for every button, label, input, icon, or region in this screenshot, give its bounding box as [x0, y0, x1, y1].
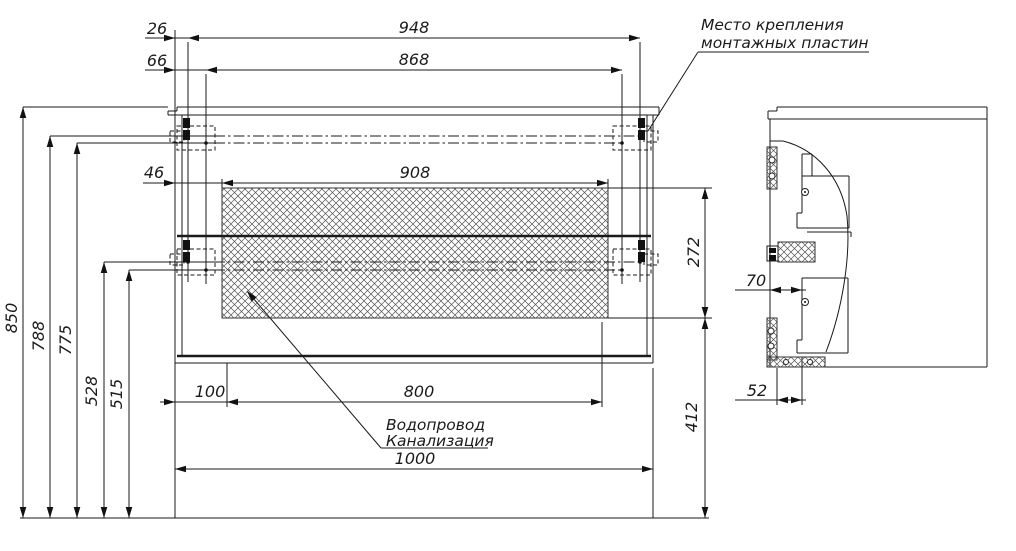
dim-label-528: 528 [82, 376, 101, 407]
dim-label-46: 46 [144, 163, 164, 182]
arrowhead [770, 287, 781, 294]
clip-solid [638, 118, 645, 128]
bolt-dot [620, 141, 624, 145]
arrowhead [206, 67, 217, 74]
clip-solid [183, 240, 190, 250]
arrowhead [702, 318, 709, 329]
bolt-dot [804, 301, 806, 303]
bolt-dot [204, 268, 208, 272]
hole-circle [784, 360, 789, 365]
clip-solid [183, 118, 190, 128]
arrowhead [702, 507, 709, 518]
arrowhead [702, 188, 709, 199]
note-mounting-plates-line2: монтажных пластин [701, 34, 869, 52]
dim-label-66: 66 [147, 51, 167, 70]
dim-label-850: 850 [2, 303, 21, 334]
clip-solid [638, 240, 645, 250]
drawing-canvas: 2694866868469088507887755285152724121008… [0, 0, 1016, 551]
dim-label-908: 908 [400, 163, 431, 182]
clip-solid [769, 248, 776, 253]
arrowhead [777, 397, 788, 404]
arrowhead [791, 287, 802, 294]
arrowhead [20, 107, 27, 118]
hatch-area [767, 357, 825, 367]
dim-label-788: 788 [29, 321, 48, 352]
note-plumbing-line2: Канализация [386, 432, 494, 450]
dim-label-26: 26 [147, 19, 167, 38]
hole-circle [768, 328, 774, 334]
hole-circle [769, 173, 775, 179]
note-mounting-plates-line1: Место крепления [701, 16, 844, 34]
arrowhead [101, 507, 108, 518]
bolt-dot [638, 260, 642, 264]
arrowhead [702, 307, 709, 318]
hatch-area [767, 318, 777, 360]
bolt-dot [186, 134, 190, 138]
arrowhead [629, 35, 640, 42]
dim-label-100: 100 [195, 382, 226, 401]
clip-solid [769, 255, 776, 261]
hatch-areas [222, 147, 825, 367]
arrowhead [227, 399, 238, 406]
arrowhead [74, 507, 81, 518]
arrowhead [74, 143, 81, 154]
drawing-line [648, 52, 698, 131]
hole-circle [769, 157, 775, 163]
bracket-dashed-rect [613, 126, 651, 150]
bolt-dot [186, 260, 190, 264]
dim-label-948: 948 [399, 18, 430, 37]
arrowhead [20, 507, 27, 518]
arrowhead [611, 67, 622, 74]
arrowhead [101, 262, 108, 273]
dim-label-70: 70 [746, 271, 766, 290]
dim-label-412: 412 [682, 402, 701, 433]
arrowhead [175, 466, 186, 473]
bolt-dot [620, 268, 624, 272]
arrowhead [164, 180, 175, 187]
hatch-area [767, 147, 777, 189]
arrowhead [126, 270, 133, 281]
arrowhead [47, 507, 54, 518]
dim-label-52: 52 [747, 381, 767, 400]
dim-label-1000: 1000 [395, 449, 436, 468]
technical-drawing: 2694866868469088507887755285152724121008… [0, 0, 1016, 551]
hole-circle [768, 343, 774, 349]
arrowhead [188, 35, 199, 42]
arrowhead [126, 507, 133, 518]
hatch-area [778, 242, 815, 262]
dim-label-775: 775 [56, 325, 75, 356]
dim-label-515: 515 [107, 379, 126, 410]
dim-label-800: 800 [404, 382, 435, 401]
arrowhead [791, 397, 802, 404]
bolt-dot [804, 191, 806, 193]
bolt-dot [204, 141, 208, 145]
arrowhead [164, 399, 175, 406]
arrowhead [47, 136, 54, 147]
dim-label-868: 868 [399, 50, 430, 69]
bracket-dashed-rect [177, 126, 215, 150]
bolt-dot [638, 134, 642, 138]
arrowhead [642, 466, 653, 473]
arrowhead [597, 180, 608, 187]
dim-label-272: 272 [684, 237, 703, 268]
arrowhead [222, 180, 233, 187]
hatch-area [222, 188, 608, 318]
arrowhead [591, 399, 602, 406]
hole-circle [808, 360, 813, 365]
